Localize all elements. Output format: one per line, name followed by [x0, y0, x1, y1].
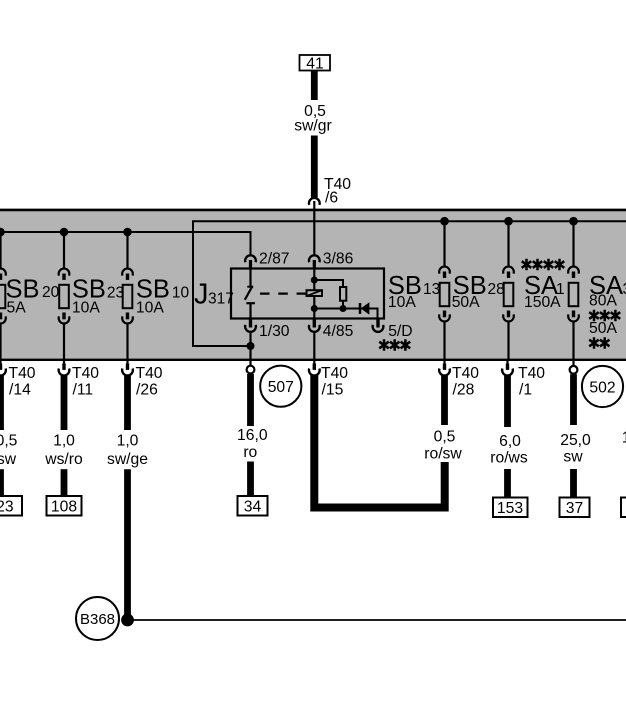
svg-text:23: 23: [107, 285, 124, 302]
svg-text:/1: /1: [519, 382, 532, 399]
svg-text:ro/sw: ro/sw: [424, 445, 462, 462]
svg-text:13: 13: [423, 281, 440, 298]
svg-text:sw: sw: [563, 449, 583, 466]
svg-text:T40: T40: [9, 365, 36, 382]
svg-text:507: 507: [268, 379, 294, 396]
svg-text:5/D: 5/D: [388, 323, 412, 340]
svg-text:123: 123: [0, 499, 14, 516]
svg-text:J: J: [194, 279, 209, 311]
svg-text:150A: 150A: [524, 294, 561, 311]
svg-text:5A: 5A: [7, 300, 27, 317]
svg-text:/15: /15: [322, 382, 344, 399]
svg-text:16,0: 16,0: [237, 427, 268, 444]
svg-text:0,5: 0,5: [0, 432, 18, 449]
svg-text:28: 28: [488, 281, 505, 298]
svg-text:25,0: 25,0: [560, 432, 591, 449]
svg-text:B368: B368: [80, 611, 115, 628]
svg-text:sw/gr: sw/gr: [294, 118, 331, 135]
svg-text:/6: /6: [325, 189, 338, 206]
svg-text:/11: /11: [73, 382, 94, 399]
svg-text:1,0: 1,0: [117, 432, 139, 449]
svg-text:6,0: 6,0: [499, 433, 521, 450]
svg-text:50A: 50A: [452, 294, 480, 311]
svg-text:41: 41: [306, 55, 323, 72]
svg-text:3/86: 3/86: [323, 251, 354, 268]
svg-text:1/30: 1/30: [259, 323, 290, 340]
svg-text:/14: /14: [9, 382, 31, 399]
svg-text:10A: 10A: [72, 300, 100, 317]
svg-text:10A: 10A: [136, 300, 164, 317]
svg-text:34: 34: [244, 499, 262, 516]
svg-text:ro/ws: ro/ws: [490, 450, 528, 467]
svg-text:ro: ro: [243, 444, 257, 461]
svg-text:10A: 10A: [388, 294, 416, 311]
svg-text:10: 10: [172, 285, 190, 302]
svg-text:/28: /28: [453, 382, 475, 399]
svg-text:80A: 80A: [589, 293, 617, 310]
svg-text:ws/ro: ws/ro: [44, 451, 83, 468]
svg-text:153: 153: [497, 500, 523, 517]
svg-text:T40: T40: [321, 365, 348, 382]
svg-text:0,5: 0,5: [434, 429, 456, 446]
svg-text:T40: T40: [136, 365, 163, 382]
svg-text:1,0: 1,0: [53, 432, 75, 449]
svg-text:16,0: 16,0: [622, 430, 626, 447]
svg-text:20: 20: [42, 284, 60, 301]
svg-text:2/87: 2/87: [259, 251, 290, 268]
svg-text:sw/ge: sw/ge: [107, 451, 148, 468]
svg-text:108: 108: [51, 499, 77, 516]
svg-text:50A: 50A: [589, 320, 617, 337]
svg-text:37: 37: [566, 500, 583, 517]
svg-text:sw: sw: [0, 451, 17, 468]
svg-text:T40: T40: [452, 365, 479, 382]
svg-text:317: 317: [208, 291, 234, 308]
svg-text:3: 3: [623, 281, 626, 298]
svg-text:T40: T40: [72, 365, 99, 382]
svg-text:502: 502: [589, 379, 615, 396]
svg-text:4/85: 4/85: [323, 323, 354, 340]
svg-text:/26: /26: [136, 382, 158, 399]
svg-text:T40: T40: [518, 365, 545, 382]
